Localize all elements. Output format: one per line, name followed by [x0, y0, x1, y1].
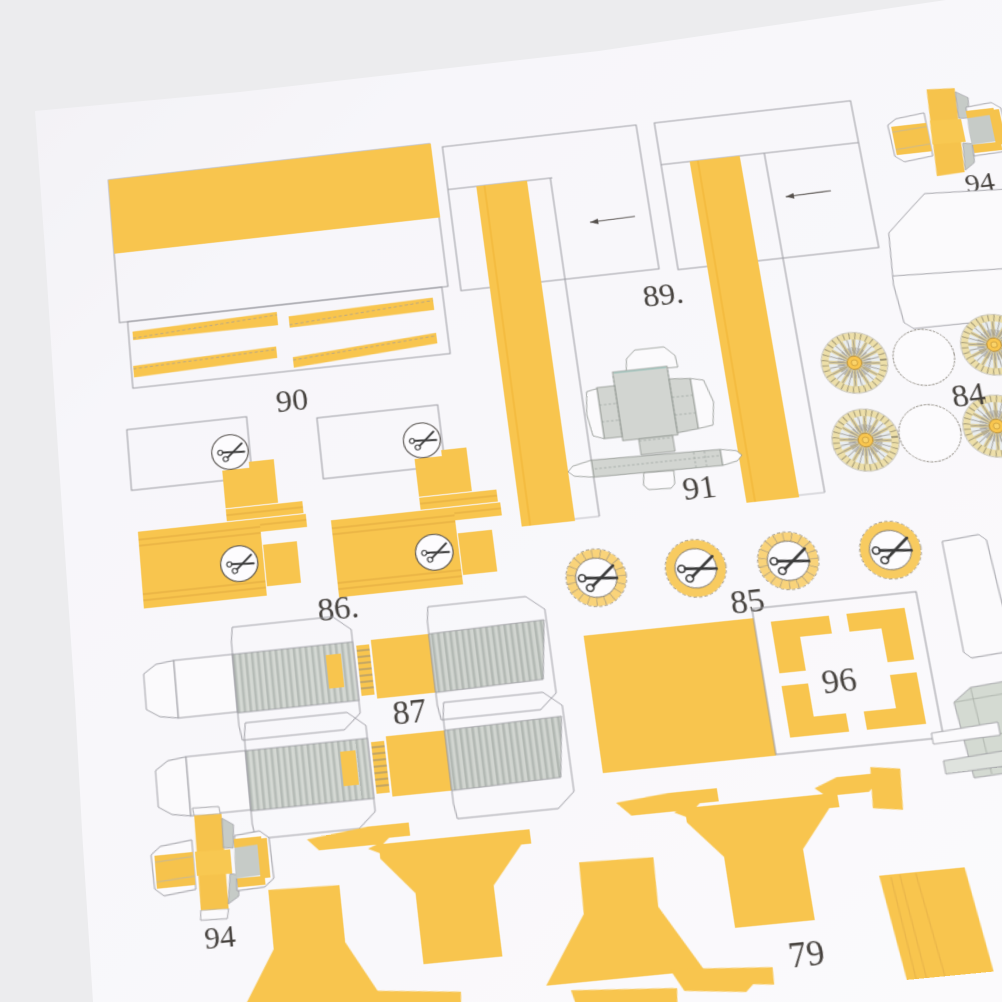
svg-text:90: 90: [274, 383, 309, 420]
svg-text:87: 87: [391, 693, 429, 733]
svg-text:94: 94: [203, 918, 237, 956]
svg-text:86.: 86.: [316, 589, 361, 629]
svg-text:79: 79: [786, 933, 828, 976]
svg-text:96: 96: [819, 661, 860, 701]
svg-text:84: 84: [949, 377, 989, 415]
svg-text:91: 91: [680, 470, 719, 508]
svg-text:89.: 89.: [641, 277, 686, 314]
svg-text:85: 85: [728, 582, 768, 621]
